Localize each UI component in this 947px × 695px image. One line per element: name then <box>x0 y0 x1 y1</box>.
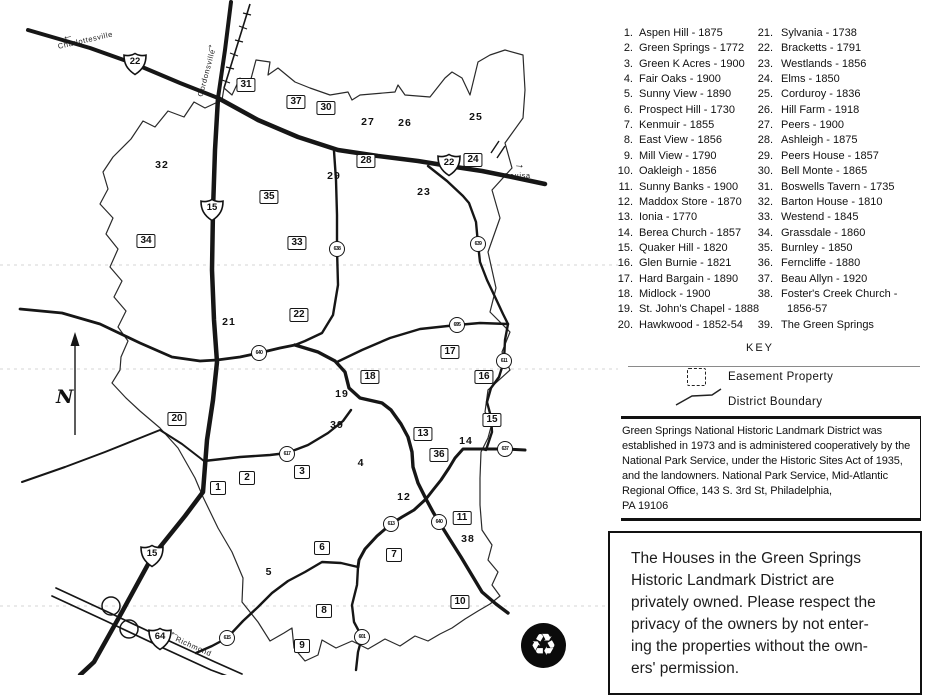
legend-item-number: 28. <box>749 133 773 147</box>
legend-item-number: 9. <box>611 149 633 163</box>
easement-marker-15: 15 <box>482 413 501 427</box>
legend-item-label: The Green Springs <box>781 318 874 332</box>
legend-item-label: Berea Church - 1857 <box>639 226 741 240</box>
legend-item-number: 21. <box>749 26 773 40</box>
legend-item-label: Burnley - 1850 <box>781 241 853 255</box>
legend-item-label: Westlands - 1856 <box>781 57 866 71</box>
route-circle-639: 639 <box>470 236 486 252</box>
legend-item-label: Green K Acres - 1900 <box>639 57 745 71</box>
map-canvas <box>0 0 622 675</box>
easement-marker-35: 35 <box>259 190 278 204</box>
property-marker-39: 39 <box>330 419 344 431</box>
district-info-line: and the landowners. National Park Servic… <box>622 469 922 484</box>
legend-item-number: 35. <box>749 241 773 255</box>
info-box-bottom-rule <box>621 518 921 521</box>
easement-marker-3: 3 <box>294 465 310 479</box>
legend-item-label: Hard Bargain - 1890 <box>639 272 738 286</box>
privacy-notice-line: The Houses in the Green Springs <box>631 548 910 570</box>
easement-marker-28: 28 <box>356 154 375 168</box>
easement-marker-7: 7 <box>386 548 402 562</box>
legend-item-number: 2. <box>611 41 633 55</box>
easement-marker-31: 31 <box>236 78 255 92</box>
louisa-label: Louisa <box>505 171 531 180</box>
recycle-icon: ♻ <box>521 623 566 668</box>
property-marker-19: 19 <box>335 388 349 400</box>
legend-item-number: 16. <box>611 256 633 270</box>
easement-marker-18: 18 <box>360 370 379 384</box>
legend-item-number: 31. <box>749 180 773 194</box>
route-shield-22: 22 <box>122 52 148 76</box>
legend-item-label: Mill View - 1790 <box>639 149 716 163</box>
legend-item-label: Quaker Hill - 1820 <box>639 241 728 255</box>
property-marker-12: 12 <box>397 491 411 503</box>
route-circle-617: 617 <box>279 446 295 462</box>
route-shield-number: 15 <box>139 548 165 559</box>
route-circle-615: 615 <box>219 630 235 646</box>
legend-item-number: 8. <box>611 133 633 147</box>
legend-item-number: 15. <box>611 241 633 255</box>
road-route-15-main <box>80 98 218 675</box>
legend-item-label: Ferncliffe - 1880 <box>781 256 860 270</box>
legend-item-number: 23. <box>749 57 773 71</box>
legend-item-label: Corduroy - 1836 <box>781 87 861 101</box>
key-title: KEY <box>700 342 820 354</box>
easement-marker-9: 9 <box>294 639 310 653</box>
legend-item-label: East View - 1856 <box>639 133 722 147</box>
legend-item-number: 24. <box>749 72 773 86</box>
legend-item-label: Glen Burnie - 1821 <box>639 256 731 270</box>
road-west-spur <box>22 430 204 482</box>
legend-item-label: Sunny View - 1890 <box>639 87 731 101</box>
easement-marker-13: 13 <box>413 427 432 441</box>
property-marker-4: 4 <box>358 457 365 469</box>
legend-item-number: 18. <box>611 287 633 301</box>
railroad-crossing-marks <box>491 141 505 158</box>
legend-item-label: Sylvania - 1738 <box>781 26 857 40</box>
privacy-notice-line: ing the properties without the own- <box>631 636 910 658</box>
easement-marker-10: 10 <box>450 595 469 609</box>
road-611 <box>482 324 508 450</box>
legend-item-number: 37. <box>749 272 773 286</box>
legend-item-label: Hawkwood - 1852-54 <box>639 318 743 332</box>
road-695 <box>337 323 508 362</box>
district-info-line: Regional Office, 143 S. 3rd St, Philadel… <box>622 484 922 499</box>
privacy-notice-line: privacy of the owners by not enter- <box>631 614 910 636</box>
easement-marker-2: 2 <box>239 471 255 485</box>
north-label: N <box>56 386 73 408</box>
scanned-map-page: 1236789101113151617182022242830313334353… <box>0 0 947 675</box>
legend-item-label: Bell Monte - 1865 <box>781 164 867 178</box>
legend-item-number: 33. <box>749 210 773 224</box>
arrow-to-louisa: → <box>513 159 525 172</box>
legend-item-label: Boswells Tavern - 1735 <box>781 180 895 194</box>
legend-item-label: Westend - 1845 <box>781 210 858 224</box>
legend-item-number: 17. <box>611 272 633 286</box>
property-marker-29: 29 <box>327 170 341 182</box>
easement-marker-6: 6 <box>314 541 330 555</box>
road-617 <box>204 410 351 461</box>
legend-item-label: Foster's Creek Church - <box>781 287 897 301</box>
legend-item-label: Kenmuir - 1855 <box>639 118 714 132</box>
north-arrow <box>71 332 80 435</box>
green-springs-district-map: 1236789101113151617182022242830313334353… <box>0 0 622 675</box>
route-circle-640: 640 <box>431 514 447 530</box>
legend-item-label: Sunny Banks - 1900 <box>639 180 738 194</box>
legend-item-label: Peers House - 1857 <box>781 149 879 163</box>
route-shield-15: 15 <box>199 198 225 222</box>
easement-marker-33: 33 <box>287 236 306 250</box>
legend-item-label: Grassdale - 1860 <box>781 226 865 240</box>
legend-item-number: 22. <box>749 41 773 55</box>
key-divider <box>628 366 920 367</box>
legend-item-number: 20. <box>611 318 633 332</box>
easement-marker-22: 22 <box>289 308 308 322</box>
privacy-notice-line: ers' permission. <box>631 658 910 680</box>
easement-marker-30: 30 <box>316 101 335 115</box>
legend-item-number: 11. <box>611 180 633 194</box>
legend-item-label: Elms - 1850 <box>781 72 840 86</box>
legend-item-label: Aspen Hill - 1875 <box>639 26 723 40</box>
legend-item-number: 30. <box>749 164 773 178</box>
road-central-south <box>295 345 508 613</box>
legend-item-label: Prospect Hill - 1730 <box>639 103 735 117</box>
legend-item-number: 32. <box>749 195 773 209</box>
district-info-line: National Park Service, under the Histori… <box>622 454 922 469</box>
legend-item-label: Hill Farm - 1918 <box>781 103 859 117</box>
legend-item-number: 14. <box>611 226 633 240</box>
easement-marker-11: 11 <box>453 511 472 525</box>
route-circle-611: 611 <box>496 353 512 369</box>
easement-marker-1: 1 <box>210 481 226 495</box>
district-info-paragraph: Green Springs National Historic Landmark… <box>622 424 922 514</box>
property-marker-14: 14 <box>459 435 473 447</box>
legend-item-number: 4. <box>611 72 633 86</box>
road-639 <box>428 166 508 324</box>
easement-marker-36: 36 <box>429 448 448 462</box>
legend-item-number: 7. <box>611 118 633 132</box>
route-shield-number: 22 <box>122 56 148 67</box>
property-marker-23: 23 <box>417 186 431 198</box>
legend-item-number: 38. <box>749 287 773 301</box>
privacy-notice-text: The Houses in the Green SpringsHistoric … <box>610 533 920 680</box>
legend-item-number: 6. <box>611 103 633 117</box>
easement-marker-34: 34 <box>136 234 155 248</box>
route-shield-22: 22 <box>436 153 462 177</box>
legend-item-label: Beau Allyn - 1920 <box>781 272 867 286</box>
legend-item-label: 1856-57 <box>787 302 827 316</box>
legend-item-number: 12. <box>611 195 633 209</box>
legend-item-label: Green Springs - 1772 <box>639 41 744 55</box>
legend-item-label: Ashleigh - 1875 <box>781 133 857 147</box>
route-shield-number: 22 <box>436 157 462 168</box>
privacy-notice-box: The Houses in the Green SpringsHistoric … <box>608 531 922 695</box>
easement-marker-20: 20 <box>167 412 186 426</box>
route-circle-695: 695 <box>449 317 465 333</box>
route-circle-613: 613 <box>383 516 399 532</box>
legend-item-label: Fair Oaks - 1900 <box>639 72 721 86</box>
legend-item-label: Bracketts - 1791 <box>781 41 861 55</box>
legend-item-label: Ionia - 1770 <box>639 210 697 224</box>
easement-property-label: Easement Property <box>728 371 833 383</box>
road-601-south <box>352 567 362 670</box>
legend-item-number: 27. <box>749 118 773 132</box>
legend-item-number: 36. <box>749 256 773 270</box>
property-marker-32: 32 <box>155 159 169 171</box>
legend-item-label: Maddox Store - 1870 <box>639 195 742 209</box>
property-marker-38: 38 <box>461 533 475 545</box>
privacy-notice-line: Historic Landmark District are <box>631 570 910 592</box>
legend-item-label: Barton House - 1810 <box>781 195 883 209</box>
legend-item-number: 25. <box>749 87 773 101</box>
legend-item-number: 13. <box>611 210 633 224</box>
legend-item-number: 5. <box>611 87 633 101</box>
route-shield-number: 15 <box>199 202 225 213</box>
easement-marker-17: 17 <box>440 345 459 359</box>
property-marker-5: 5 <box>266 566 273 578</box>
arrow-to-charlottesville: ← <box>61 29 74 43</box>
easement-property-icon <box>687 368 706 386</box>
district-boundary-icon <box>672 386 724 408</box>
legend-item-number: 29. <box>749 149 773 163</box>
route-shield-15: 15 <box>139 544 165 568</box>
privacy-notice-line: privately owned. Please respect the <box>631 592 910 614</box>
easement-marker-37: 37 <box>286 95 305 109</box>
legend-item-number: 39. <box>749 318 773 332</box>
property-marker-21: 21 <box>222 316 236 328</box>
easement-marker-8: 8 <box>316 604 332 618</box>
legend-item-number: 19. <box>611 302 633 316</box>
legend-item-label: Peers - 1900 <box>781 118 844 132</box>
property-marker-27: 27 <box>361 116 375 128</box>
legend-item-number: 3. <box>611 57 633 71</box>
easement-marker-16: 16 <box>474 370 493 384</box>
district-info-line: PA 19106 <box>622 499 922 514</box>
property-marker-25: 25 <box>469 111 483 123</box>
road-route-22-east <box>218 98 545 184</box>
route-circle-640: 640 <box>251 345 267 361</box>
road-637 <box>358 449 525 567</box>
info-box-top-rule <box>621 416 921 419</box>
legend-item-number: 34. <box>749 226 773 240</box>
interstate-64-lane-b <box>52 596 238 675</box>
legend-item-label: Midlock - 1900 <box>639 287 711 301</box>
legend-item-number: 1. <box>611 26 633 40</box>
route-circle-637: 637 <box>497 441 513 457</box>
road-route-15-north-gordonsville <box>218 2 231 98</box>
district-boundary-label: District Boundary <box>728 396 822 408</box>
legend-item-label: Oakleigh - 1856 <box>639 164 717 178</box>
legend-item-number: 26. <box>749 103 773 117</box>
fold-line-artifacts <box>0 265 618 606</box>
district-info-line: established in 1973 and is administered … <box>622 439 922 454</box>
legend-item-number: 10. <box>611 164 633 178</box>
route-circle-601: 601 <box>354 629 370 645</box>
legend-item-label: St. John's Chapel - 1888 <box>639 302 759 316</box>
easement-marker-24: 24 <box>463 153 482 167</box>
district-info-line: Green Springs National Historic Landmark… <box>622 424 922 439</box>
interchange-loop-1 <box>102 597 120 615</box>
route-circle-638: 638 <box>329 241 345 257</box>
property-marker-26: 26 <box>398 117 412 129</box>
